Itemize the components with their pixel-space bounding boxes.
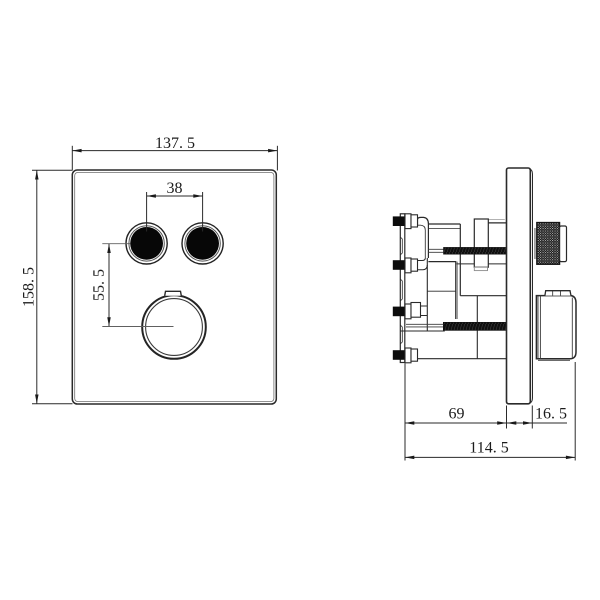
- svg-text:114. 5: 114. 5: [469, 440, 508, 457]
- svg-text:16. 5: 16. 5: [535, 406, 567, 423]
- svg-text:55. 5: 55. 5: [91, 269, 108, 301]
- svg-text:137. 5: 137. 5: [155, 135, 195, 152]
- svg-text:38: 38: [167, 180, 183, 197]
- svg-text:158. 5: 158. 5: [21, 267, 38, 307]
- svg-text:69: 69: [449, 406, 465, 423]
